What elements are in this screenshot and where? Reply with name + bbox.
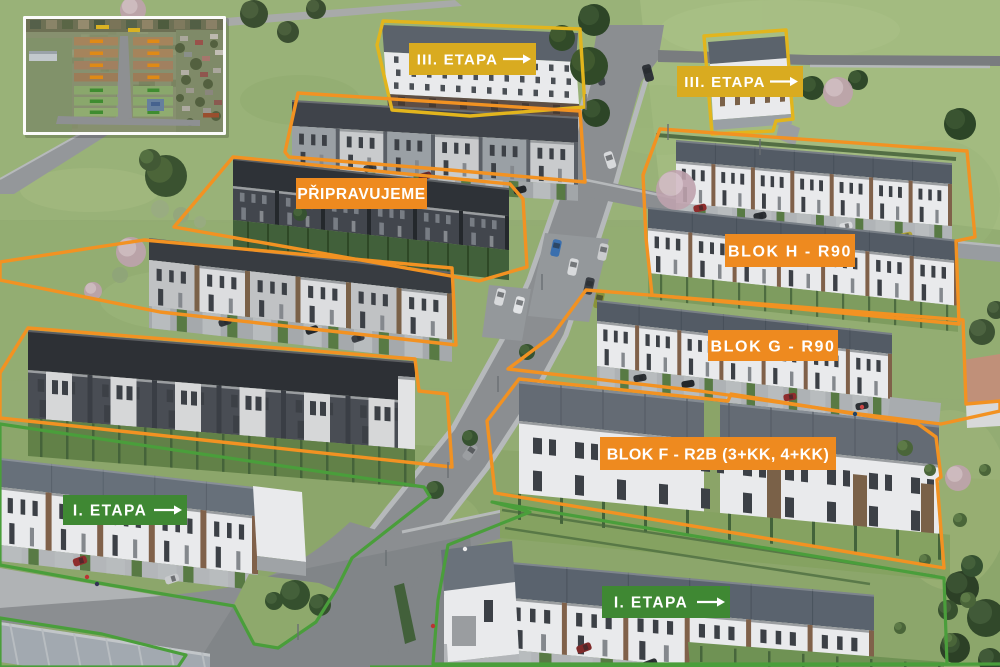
svg-text:BLOK G - R90: BLOK G - R90 (711, 338, 836, 355)
svg-text:BLOK H - R90: BLOK H - R90 (728, 243, 852, 260)
svg-text:I. ETAPA: I. ETAPA (73, 503, 147, 520)
svg-text:III. ETAPA: III. ETAPA (684, 74, 765, 91)
svg-text:III. ETAPA: III. ETAPA (417, 51, 498, 68)
svg-text:BLOK F - R2B (3+KK, 4+KK): BLOK F - R2B (3+KK, 4+KK) (607, 446, 829, 463)
svg-text:I. ETAPA: I. ETAPA (614, 595, 688, 612)
svg-text:PŘIPRAVUJEME: PŘIPRAVUJEME (297, 185, 425, 203)
